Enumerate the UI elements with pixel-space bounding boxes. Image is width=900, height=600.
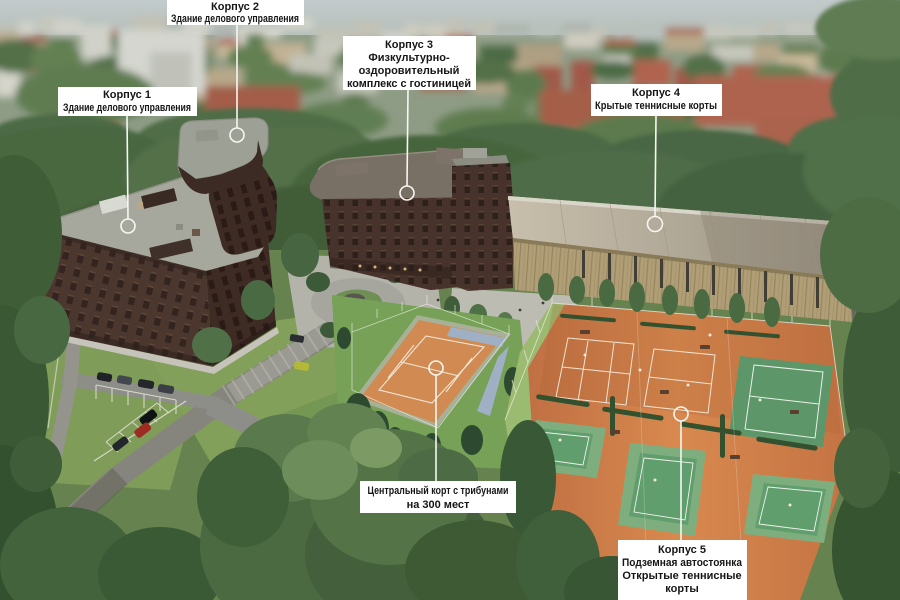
svg-text:Физкультурно-: Физкультурно- bbox=[368, 52, 450, 64]
svg-text:Здание делового управления: Здание делового управления bbox=[63, 102, 191, 114]
svg-text:корты: корты bbox=[665, 583, 698, 595]
svg-text:Корпус 3: Корпус 3 bbox=[385, 39, 433, 51]
svg-text:комплекс с гостиницей: комплекс с гостиницей bbox=[347, 78, 471, 90]
svg-text:Здание делового управления: Здание делового управления bbox=[171, 13, 299, 25]
svg-text:Корпус 4: Корпус 4 bbox=[632, 87, 681, 99]
svg-text:Корпус 5: Корпус 5 bbox=[658, 544, 706, 556]
svg-text:Крытые теннисные корты: Крытые теннисные корты bbox=[595, 100, 717, 112]
svg-text:Корпус 1: Корпус 1 bbox=[103, 89, 151, 101]
svg-text:оздоровительный: оздоровительный bbox=[359, 65, 460, 77]
svg-text:Корпус 2: Корпус 2 bbox=[211, 1, 259, 13]
svg-text:Подземная автостоянка: Подземная автостоянка bbox=[622, 557, 743, 569]
svg-text:на 300 мест: на 300 мест bbox=[407, 499, 470, 511]
svg-text:Центральный корт с трибунами: Центральный корт с трибунами bbox=[368, 485, 509, 497]
svg-text:Открытые теннисные: Открытые теннисные bbox=[622, 570, 741, 582]
